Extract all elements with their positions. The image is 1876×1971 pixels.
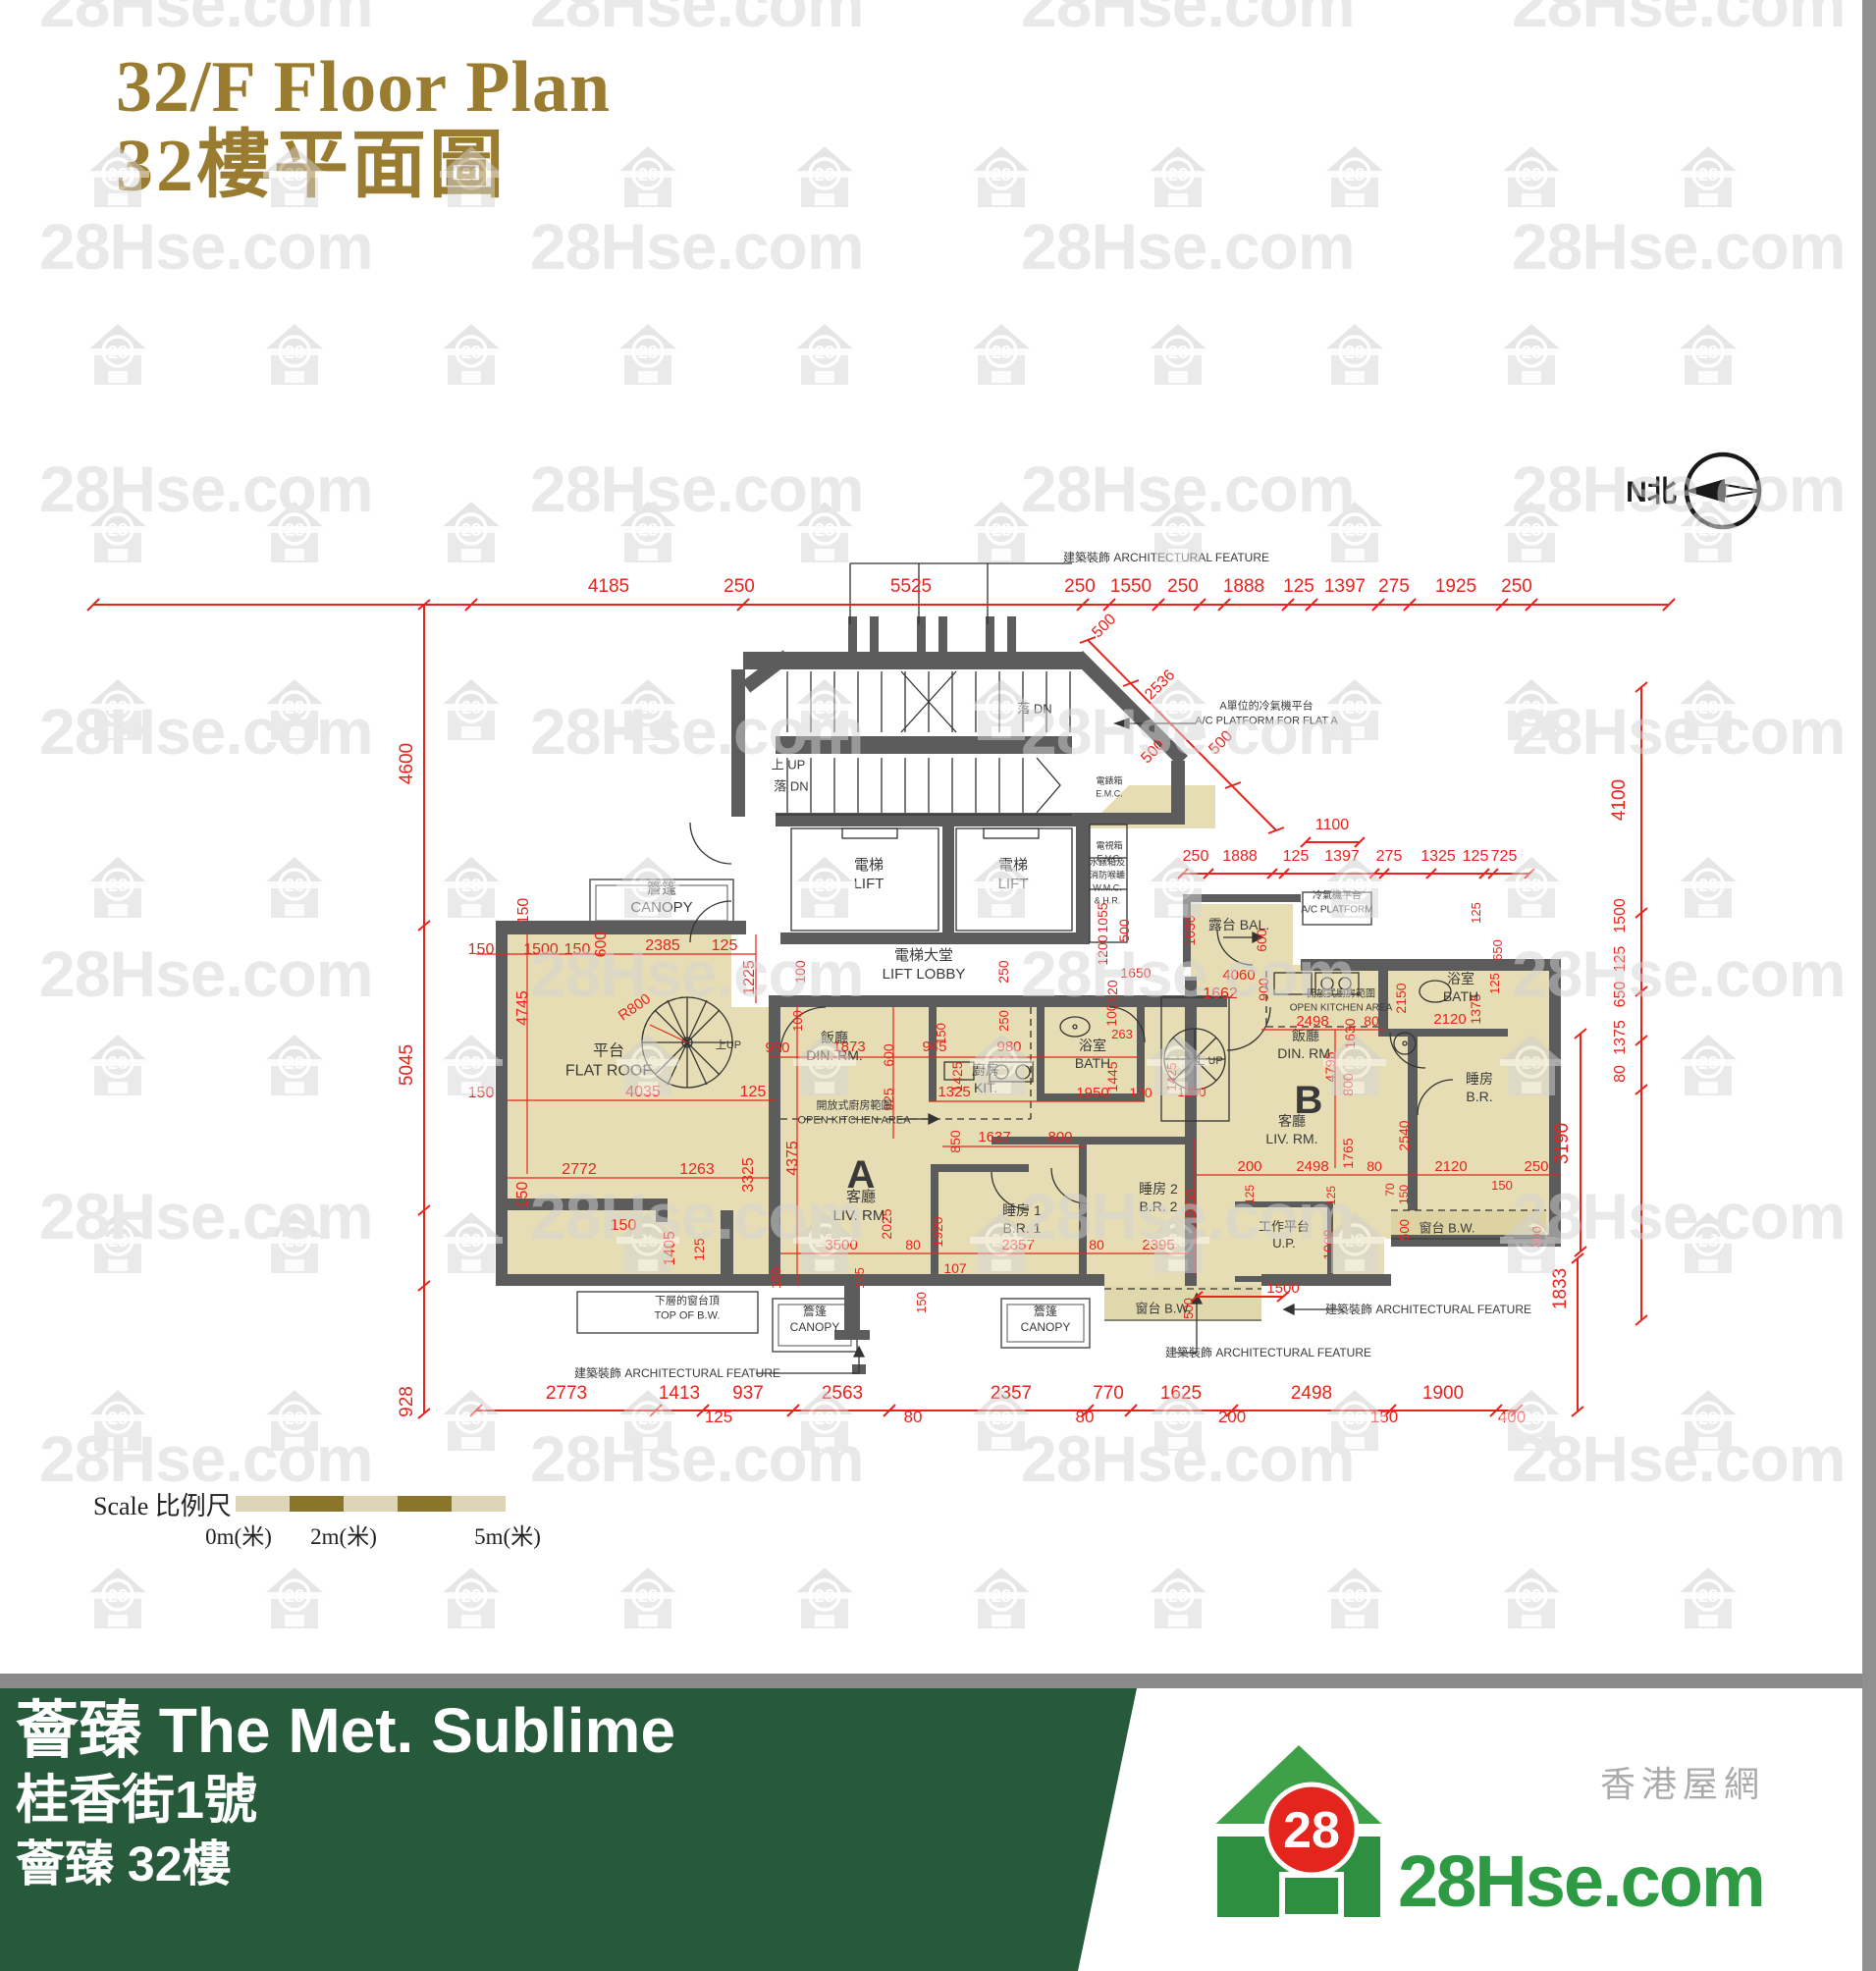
room-label: 睡房 2 <box>1139 1181 1178 1197</box>
room-label: B.R. 1 <box>1003 1220 1042 1236</box>
dimension-label: 80 <box>1367 1158 1382 1174</box>
dimension-label: 4185 <box>588 576 629 597</box>
room-label: 平台 <box>593 1042 624 1060</box>
footer-divider <box>0 1674 1876 1688</box>
dimension-label: 1405 <box>662 1231 678 1266</box>
dimension-label: 2395 <box>1142 1237 1174 1253</box>
dimension-label: 600 <box>593 932 610 958</box>
room-label: A/C PLATFORM FOR FLAT A <box>1195 715 1338 726</box>
dimension-label: 80 <box>905 1237 921 1252</box>
dimension-label: 150 <box>1397 1185 1411 1204</box>
dimension-label: 1500 <box>523 941 559 958</box>
compass-label: N北 <box>1626 476 1677 508</box>
dimension-label: 150 <box>515 898 532 925</box>
room-label: 簷篷 <box>647 879 676 897</box>
dimension-label: 125 <box>712 937 738 954</box>
scale-tick-5m: 5m(米) <box>474 1518 541 1551</box>
room-label: 建築裝飾 ARCHITECTURAL FEATURE <box>1325 1302 1531 1316</box>
dimension-label: 250 <box>724 576 755 597</box>
room-label: 電梯 <box>998 857 1028 874</box>
room-label: 開放式廚房範圍 <box>817 1097 892 1111</box>
property-info: 薈臻 The Met. Sublime 桂香街1號 薈臻 32樓 <box>16 1695 675 1895</box>
room-label: 簷篷 <box>1034 1304 1057 1318</box>
room-label: 水錶箱及 <box>1090 857 1125 868</box>
room-label: LIV. RM. <box>1265 1131 1317 1146</box>
room-label: U.P. <box>1272 1236 1296 1251</box>
dimension-label: 5045 <box>397 1044 417 1086</box>
dimension-label: 120 <box>1104 980 1120 1003</box>
room-label: 客廳 <box>846 1188 876 1205</box>
room-label: E.M.C. <box>1096 789 1123 799</box>
dimension-label: 1925 <box>1435 576 1476 597</box>
dimension-label: 1055 <box>1095 902 1110 932</box>
dimension-label: 1375 <box>1612 1020 1629 1055</box>
dimension-label: 500 <box>1206 727 1236 758</box>
dimension-label: 150 <box>934 1023 948 1044</box>
dimension-label: 1888 <box>1223 576 1264 597</box>
room-label: 落 DN <box>774 779 808 794</box>
dimension-label: 100 <box>792 960 808 984</box>
room-label: DIN. RM. <box>806 1047 863 1063</box>
room-label: 露台 BAL. <box>1208 917 1269 932</box>
room-label: 冷氣機平台 <box>1313 889 1362 902</box>
dimension-label: 1900 <box>1422 1383 1464 1404</box>
dimension-label: 1200 <box>1095 934 1110 965</box>
dimension-label: 200 <box>1218 1408 1246 1426</box>
room-label: FLAT ROOF <box>565 1063 653 1080</box>
dimension-label: 400 <box>1529 1226 1544 1248</box>
dimension-label: 125 <box>852 1267 867 1289</box>
dimension-label: 1397 <box>1324 848 1360 865</box>
dimension-label: 150 <box>1491 1178 1513 1193</box>
room-label: 電梯大堂 <box>894 947 953 964</box>
dimension-label: 725 <box>1491 848 1518 865</box>
dimension-label: 928 <box>397 1386 417 1417</box>
room-label: OPEN KITCHEN AREA <box>798 1114 912 1126</box>
dimension-label: 150 <box>514 1182 531 1208</box>
floor-plan-page: 4185250552525015502501888125139727519252… <box>0 0 1876 1971</box>
room-label: 窗台 B.W. <box>1135 1302 1191 1316</box>
dimension-label: 125 <box>1283 848 1310 865</box>
dimension-label: 1550 <box>1110 576 1152 597</box>
dimension-label: 80 <box>1076 1408 1095 1426</box>
dimension-label: 1397 <box>1324 576 1366 597</box>
dimension-label: 2498 <box>1296 1158 1328 1175</box>
dimension-label: 1662 <box>1203 985 1238 1002</box>
room-label: & H.R. <box>1095 896 1121 906</box>
dimension-label: 400 <box>1498 1408 1526 1426</box>
property-floor: 薈臻 32樓 <box>16 1834 675 1895</box>
dimension-label: 1888 <box>1222 848 1258 865</box>
room-label: OPEN KITCHEN AREA <box>1290 1003 1393 1014</box>
dimension-label: 125 <box>1324 1186 1338 1205</box>
room-label: A單位的冷氣機平台 <box>1219 698 1313 712</box>
dimension-label: 4060 <box>1222 967 1255 984</box>
dimension-label: 125 <box>740 1084 767 1100</box>
scale-segment <box>452 1496 506 1512</box>
dimension-label: 150 <box>611 1217 637 1234</box>
property-address: 桂香街1號 <box>16 1768 675 1835</box>
dimension-label: 125 <box>1463 848 1489 865</box>
dimension-label: 80 <box>1364 1013 1379 1029</box>
room-label: 浴室 <box>1079 1038 1106 1053</box>
dimension-label: 150 <box>914 1292 929 1313</box>
room-label: A/C PLATFORM <box>1301 905 1372 916</box>
dimension-label: 600 <box>881 1043 896 1067</box>
scale-segment <box>398 1496 452 1512</box>
dimension-label: 2563 <box>822 1383 863 1404</box>
dimension-label: 850 <box>947 1130 963 1153</box>
room-label: 建築裝飾 ARCHITECTURAL FEATURE <box>574 1365 780 1380</box>
dimension-label: 125 <box>1469 902 1483 924</box>
room-label: 上UP <box>716 1039 741 1051</box>
scale-tick-2m: 2m(米) <box>310 1518 377 1551</box>
scale-segment <box>290 1496 344 1512</box>
dimension-label: 125 <box>1487 973 1502 994</box>
dimension-label: 980 <box>996 1039 1021 1055</box>
dimension-label: 1325 <box>1420 848 1456 865</box>
dimension-label: 250 <box>995 960 1011 984</box>
north-compass: N北 <box>1626 454 1761 527</box>
dimension-label: 100 <box>790 1010 805 1032</box>
room-label: B.R. 2 <box>1140 1199 1178 1214</box>
dimension-label: 1200 <box>1178 1085 1206 1099</box>
dimension-label: 800 <box>1340 1073 1356 1096</box>
room-label: 上 UP <box>1194 1054 1222 1067</box>
room-label: 落 DN <box>1017 702 1051 717</box>
dimension-label: 2357 <box>1001 1237 1034 1253</box>
dimension-label: 125 <box>1612 946 1629 973</box>
dimension-label: 1413 <box>659 1383 700 1404</box>
room-label: 睡房 1 <box>1002 1202 1042 1218</box>
dimension-label: 250 <box>1524 1158 1548 1175</box>
page-title-chinese: 32樓平面圖 <box>116 124 611 209</box>
dimension-label: 2850 <box>1182 1189 1198 1219</box>
dimension-label: 4375 <box>784 1141 801 1176</box>
dimension-label: 1765 <box>1340 1138 1356 1168</box>
room-label: 窗台 B.W. <box>1419 1221 1474 1236</box>
compass-arrow-icon <box>1685 479 1725 503</box>
dimension-label: 4600 <box>397 743 417 784</box>
dimension-label: 125 <box>691 1238 707 1261</box>
room-label: 工作平台 <box>1259 1219 1310 1234</box>
room-label: TOP OF B.W. <box>655 1309 721 1321</box>
dimension-label: 200 <box>1237 1158 1261 1175</box>
room-label: LIFT LOBBY <box>883 966 966 983</box>
dimension-label: 1000 <box>1320 1229 1336 1259</box>
room-label: BATH <box>1075 1055 1110 1071</box>
room-label: 消防喉轆 <box>1090 870 1125 880</box>
dimension-label: 1325 <box>938 1084 970 1100</box>
dimension-label: 250 <box>1167 576 1199 597</box>
dimension-label: 80 <box>1089 1237 1104 1252</box>
dimension-label: 950 <box>765 1039 789 1056</box>
dimension-label: 1225 <box>741 960 758 995</box>
dimension-label: 2150 <box>1393 983 1409 1013</box>
dimension-label: 150 <box>1370 1408 1398 1426</box>
dimension-label: 2120 <box>1434 1158 1467 1175</box>
dimension-label: 150 <box>468 1085 495 1101</box>
dimension-label: 937 <box>732 1383 764 1404</box>
page-title: 32/F Floor Plan <box>116 51 611 124</box>
room-label: 電視箱 <box>1096 840 1122 851</box>
dimension-label: 2773 <box>546 1383 587 1404</box>
dimension-label: 500 <box>1397 1219 1412 1241</box>
dimension-label: 2540 <box>1396 1120 1412 1150</box>
dimension-label: 125 <box>1243 1185 1257 1204</box>
room-label: 電梯 <box>854 857 884 874</box>
dimension-label: 2357 <box>991 1383 1032 1404</box>
room-label: 上 UP <box>772 758 806 772</box>
dimension-label: 150 <box>468 941 495 958</box>
site-name: 香港屋網 <box>1600 1764 1765 1804</box>
room-label: 下層的窗台頂 <box>655 1293 720 1306</box>
dimension-label: 125 <box>705 1408 732 1426</box>
dimension-label: 1625 <box>1160 1383 1202 1404</box>
room-label: CANOPY <box>630 899 692 916</box>
footer: 28 28Hse.com 香港屋網 薈臻 The Met. Sublime 桂香… <box>0 1674 1876 1971</box>
room-label: 廚房 <box>972 1062 999 1078</box>
dimension-label: 250 <box>1501 576 1532 597</box>
dimension-label: 4035 <box>625 1084 661 1100</box>
dimension-label: 263 <box>1111 1027 1133 1041</box>
room-label: 睡房 <box>1466 1071 1493 1087</box>
room-label: B.R. <box>1466 1089 1492 1104</box>
room-label: 電錶箱 <box>1096 775 1122 786</box>
dimension-label: 80 <box>1612 1065 1629 1083</box>
dimension-label: 650 <box>1490 939 1505 961</box>
dimension-label: 1500 <box>1612 898 1629 933</box>
dimension-label: 3325 <box>740 1157 757 1193</box>
room-label: KIT. <box>974 1080 997 1095</box>
dimension-label: 80 <box>904 1408 923 1426</box>
dimension-label: 150 <box>564 941 591 958</box>
dimension-label: 3500 <box>825 1237 857 1253</box>
room-label: 簷篷 <box>803 1304 827 1318</box>
scale-segment <box>344 1496 398 1512</box>
room-label: 客廳 <box>1278 1113 1306 1129</box>
dimension-label: 125 <box>1283 576 1314 597</box>
dimension-label: 250 <box>996 1010 1011 1032</box>
dimension-label: 100 <box>1103 1003 1119 1027</box>
dimension-label: 500 <box>1116 919 1132 942</box>
room-label: W.M.C. <box>1093 883 1122 893</box>
brand-logo-icon: 28 <box>1206 1745 1392 1917</box>
dimension-label: 4745 <box>514 990 531 1026</box>
brand-name: 28Hse.com <box>1398 1840 1764 1922</box>
dimension-label: 650 <box>1612 982 1629 1008</box>
room-label: 飯廳 <box>821 1030 848 1045</box>
right-border <box>1862 0 1876 1971</box>
dimension-label: 250 <box>1064 576 1096 597</box>
dimension-label: 2120 <box>1433 1011 1466 1028</box>
dimension-label: 500 <box>1089 611 1119 641</box>
dimension-label: 2772 <box>562 1161 597 1178</box>
room-label: 開放式廚房範圍 <box>1307 987 1375 1000</box>
room-label: LIV. RM. <box>833 1207 889 1224</box>
dimension-label: 2385 <box>645 937 680 954</box>
dimension-label: 900 <box>1256 978 1271 1001</box>
room-label: 建築裝飾 ARCHITECTURAL FEATURE <box>1063 550 1269 564</box>
room-label: 飯廳 <box>1292 1028 1319 1043</box>
dimension-label: 107 <box>943 1260 967 1276</box>
dimension-label: 1630 <box>1342 1018 1358 1048</box>
dimension-label: 2536 <box>1142 666 1178 703</box>
property-name: 薈臻 The Met. Sublime <box>16 1695 675 1768</box>
dimension-label: 1100 <box>1315 817 1350 833</box>
dimension-label: 800 <box>1047 1129 1072 1145</box>
room-label: DIN. RM. <box>1277 1045 1334 1061</box>
room-label: LIFT <box>998 876 1029 892</box>
room-label: 浴室 <box>1447 971 1474 986</box>
room-label: CANOPY <box>790 1320 840 1334</box>
room-label: BATH <box>1443 988 1478 1004</box>
room-label: CANOPY <box>1021 1320 1071 1334</box>
dimension-label: 2498 <box>1291 1383 1332 1404</box>
dimension-label: 1650 <box>1120 965 1151 981</box>
room-label: LIFT <box>854 876 884 892</box>
dimension-label: 70 <box>1383 1183 1397 1197</box>
title-block: 32/F Floor Plan 32樓平面圖 <box>116 51 611 209</box>
scale-segment <box>236 1496 290 1512</box>
dimension-label: 250 <box>1183 848 1209 865</box>
dimension-label: 5525 <box>890 576 932 597</box>
dimension-label: 150 <box>769 1267 783 1289</box>
dimension-label: 1500 <box>1266 1280 1299 1297</box>
dimension-label: 4100 <box>1609 779 1630 821</box>
dimension-label: 275 <box>1378 576 1410 597</box>
room-label: 建築裝飾 ARCHITECTURAL FEATURE <box>1165 1345 1371 1359</box>
dimension-label: 275 <box>1376 848 1403 865</box>
dimension-label: 1833 <box>1550 1268 1571 1309</box>
brand-badge: 28 <box>1283 1802 1340 1859</box>
dimension-label: 100 <box>1129 1085 1152 1100</box>
dimension-label: 1920 <box>930 1216 945 1247</box>
dimension-label: 770 <box>1093 1383 1124 1404</box>
dimension-label: 3190 <box>1552 1123 1573 1164</box>
dimension-label: 1263 <box>679 1161 715 1178</box>
scale-tick-0m: 0m(米) <box>205 1518 272 1551</box>
dimension-label: 1637 <box>978 1129 1010 1145</box>
dimension-label: 1030 <box>1182 915 1198 945</box>
